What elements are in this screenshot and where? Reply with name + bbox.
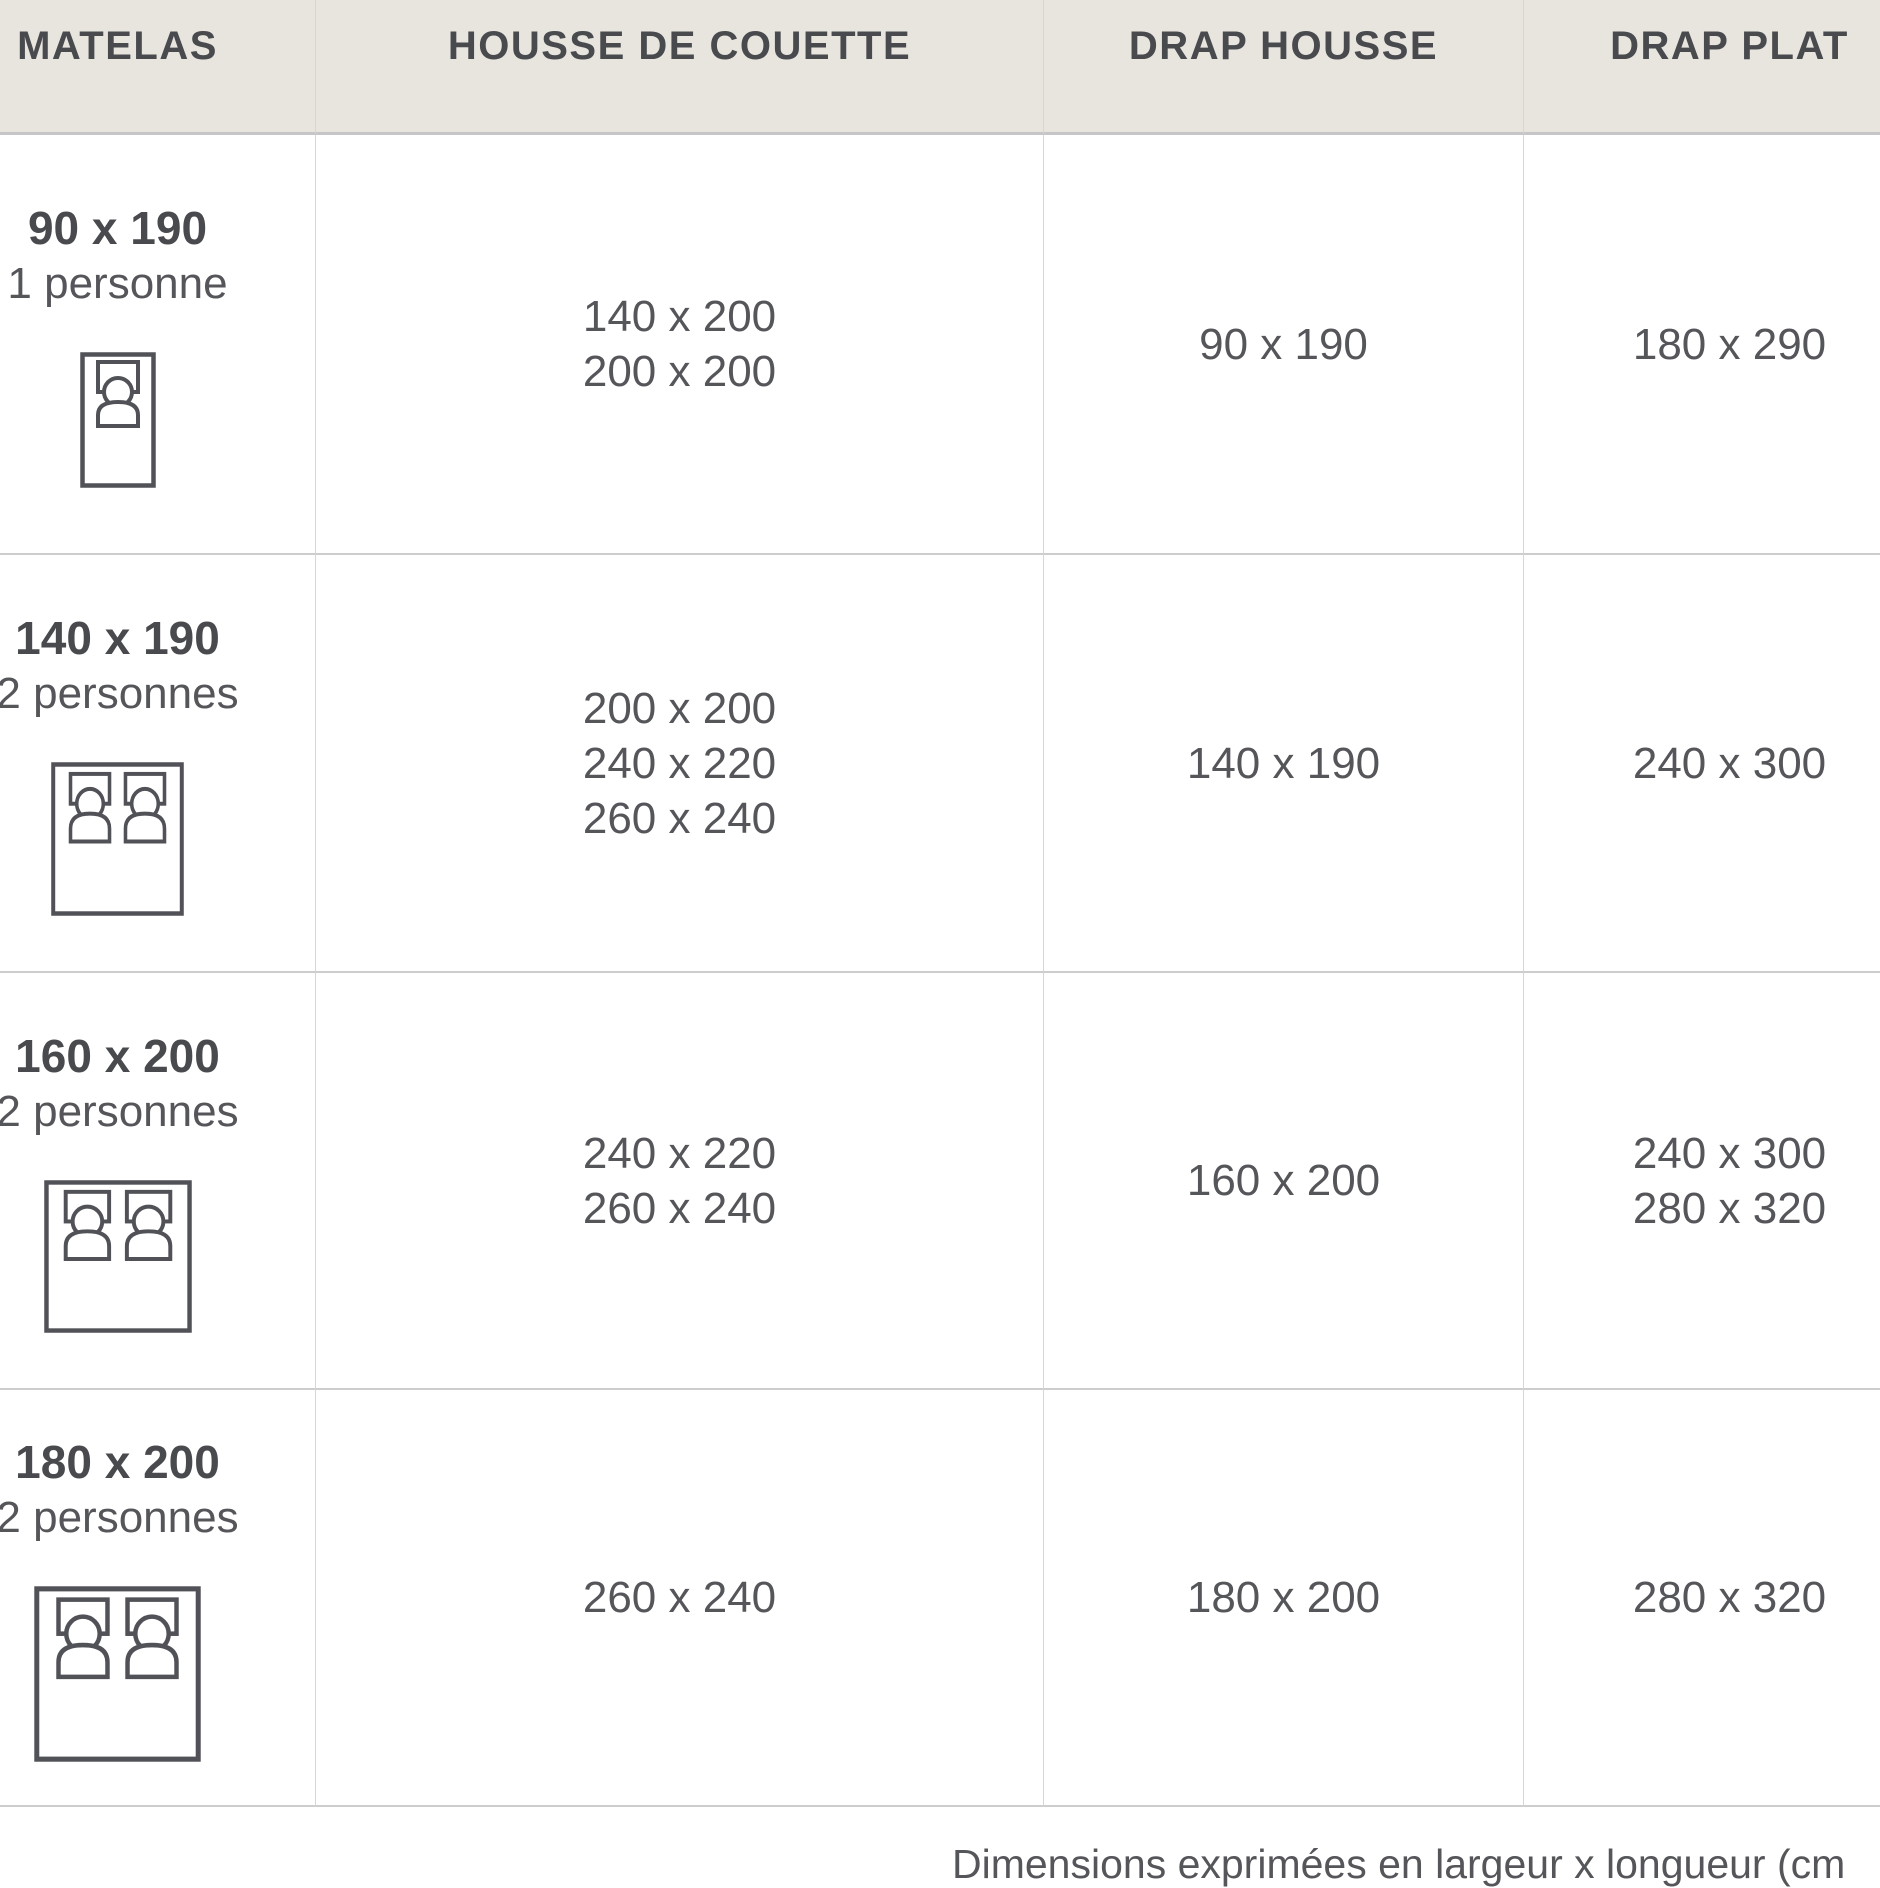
capacity-label: 2 personnes [0,1490,239,1546]
size-value: 90 x 190 [1199,317,1368,372]
size-value: 200 x 200 [583,344,776,399]
matelas-cell-140x190: 140 x 190 2 personnes [0,555,315,973]
column-header-drap-housse: DRAP HOUSSE [1043,0,1523,135]
housse-de-couette-cell: 140 x 200 200 x 200 [315,135,1043,555]
double-bed-icon [34,1586,201,1762]
housse-de-couette-cell: 260 x 240 [315,1390,1043,1807]
size-value: 260 x 240 [583,1570,776,1625]
bedding-size-table: MATELAS HOUSSE DE COUETTE DRAP HOUSSE DR… [0,0,1880,1807]
size-value: 140 x 190 [1187,736,1380,791]
capacity-label: 2 personnes [0,1084,239,1140]
size-value: 240 x 220 [583,1126,776,1181]
housse-de-couette-cell: 200 x 200 240 x 220 260 x 240 [315,555,1043,973]
mattress-size-label: 160 x 200 [15,1028,220,1084]
mattress-size-label: 140 x 190 [15,610,220,666]
drap-housse-cell: 180 x 200 [1043,1390,1523,1807]
size-value: 140 x 200 [583,289,776,344]
matelas-cell-90x190: 90 x 190 1 personne [0,135,315,555]
size-value: 200 x 200 [583,681,776,736]
size-value: 160 x 200 [1187,1153,1380,1208]
double-bed-icon [51,762,184,916]
size-value: 180 x 200 [1187,1570,1380,1625]
matelas-cell-180x200: 180 x 200 2 personnes [0,1390,315,1807]
mattress-size-label: 90 x 190 [28,200,207,256]
drap-housse-cell: 90 x 190 [1043,135,1523,555]
drap-plat-cell: 280 x 320 [1523,1390,1880,1807]
size-value: 240 x 300 [1633,1126,1826,1181]
drap-plat-cell: 180 x 290 [1523,135,1880,555]
drap-plat-cell: 240 x 300 280 x 320 [1523,973,1880,1390]
drap-plat-cell: 240 x 300 [1523,555,1880,973]
size-value: 280 x 320 [1633,1181,1826,1236]
column-header-drap-plat: DRAP PLAT [1523,0,1880,135]
size-value: 260 x 240 [583,791,776,846]
housse-de-couette-cell: 240 x 220 260 x 240 [315,973,1043,1390]
single-bed-icon [80,352,156,488]
capacity-label: 1 personne [7,256,227,312]
size-value: 280 x 320 [1633,1570,1826,1625]
double-bed-icon [44,1180,192,1333]
size-value: 180 x 290 [1633,317,1826,372]
size-value: 260 x 240 [583,1181,776,1236]
dimensions-footnote: Dimensions exprimées en largeur x longue… [952,1841,1845,1888]
drap-housse-cell: 160 x 200 [1043,973,1523,1390]
drap-housse-cell: 140 x 190 [1043,555,1523,973]
matelas-cell-160x200: 160 x 200 2 personnes [0,973,315,1390]
mattress-size-label: 180 x 200 [15,1434,220,1490]
size-value: 240 x 220 [583,736,776,791]
column-header-matelas: MATELAS [0,0,315,135]
size-value: 240 x 300 [1633,736,1826,791]
capacity-label: 2 personnes [0,666,239,722]
column-header-housse-de-couette: HOUSSE DE COUETTE [315,0,1043,135]
